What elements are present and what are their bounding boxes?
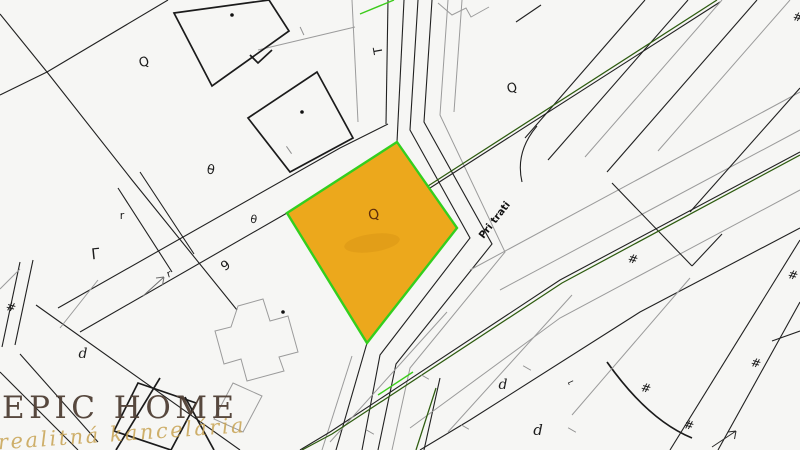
landuse-symbol-d: d [79,346,88,362]
building-center-dot [230,13,234,17]
building-center-dot [300,110,304,114]
building-center-dot [281,310,285,314]
cadastral-map[interactable]: QQQTθθrrΓ9ddd#######⌐ Pri trati EPIC HOM… [0,0,800,450]
landuse-symbol-d: d [499,377,508,393]
map-viewport[interactable]: QQQTθθrrΓ9ddd#######⌐ Pri trati EPIC HOM… [0,0,800,450]
landuse-symbol-d: d [533,421,543,439]
landuse-symbol-r: r [120,209,125,222]
